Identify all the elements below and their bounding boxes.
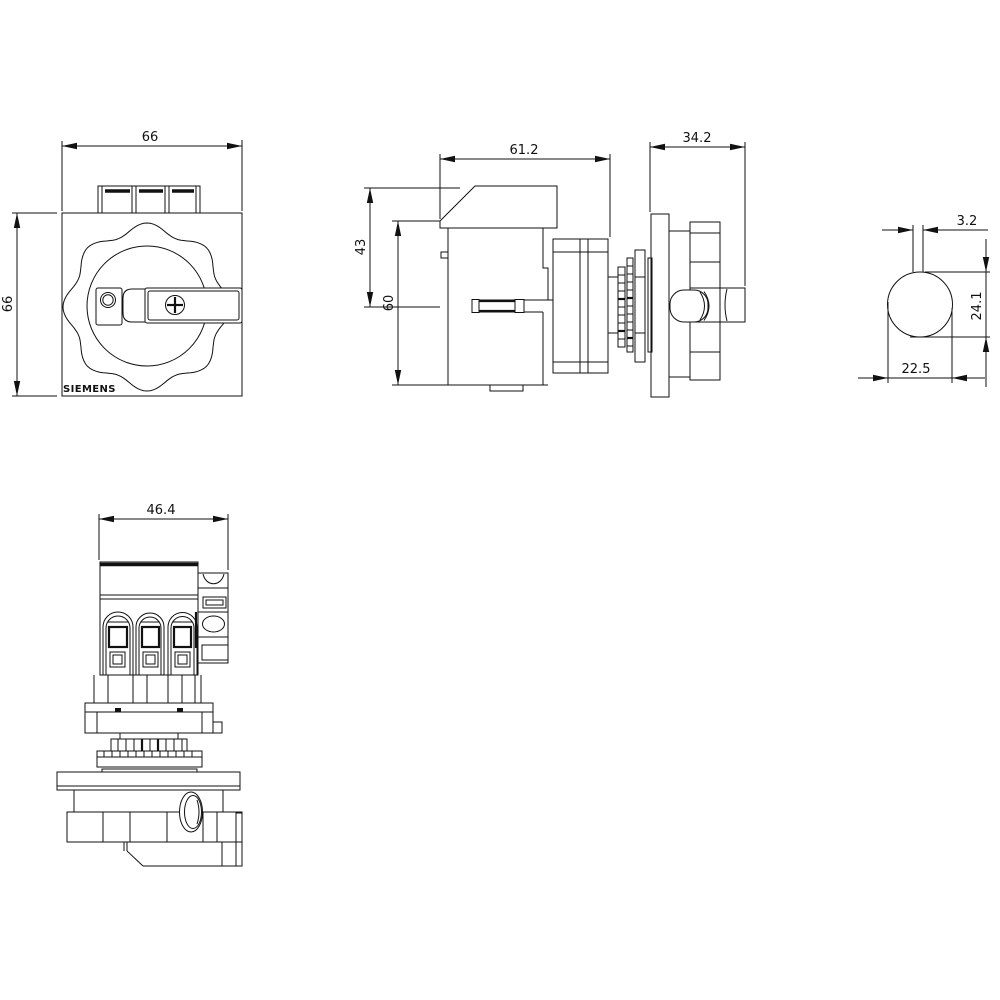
front-height-label: 66 xyxy=(1,296,16,313)
handle-lock-plate xyxy=(96,288,122,325)
handle-lever xyxy=(145,288,242,323)
knob-depth-label: 34.2 xyxy=(683,131,712,146)
background xyxy=(0,0,1000,1000)
body-height-label: 60 xyxy=(382,295,397,312)
section-width-label: 22.5 xyxy=(902,362,931,377)
front-width-label: 66 xyxy=(142,130,159,145)
handle-hub xyxy=(123,289,145,322)
handle-tip-side xyxy=(720,288,745,322)
upper-height-label: 43 xyxy=(354,239,369,256)
brand-logo: SIEMENS xyxy=(63,384,116,395)
section-height-label: 24.1 xyxy=(970,292,985,321)
handle-assembly xyxy=(96,288,242,325)
dimensional-drawing: 66 66 xyxy=(0,0,1000,1000)
side-width-label: 61.2 xyxy=(510,143,539,158)
bottom-width-label: 46.4 xyxy=(147,503,176,518)
technical-drawing-page: 66 66 xyxy=(0,0,1000,1000)
handle-grip-side xyxy=(670,290,708,322)
slot-width-label: 3.2 xyxy=(957,214,978,229)
